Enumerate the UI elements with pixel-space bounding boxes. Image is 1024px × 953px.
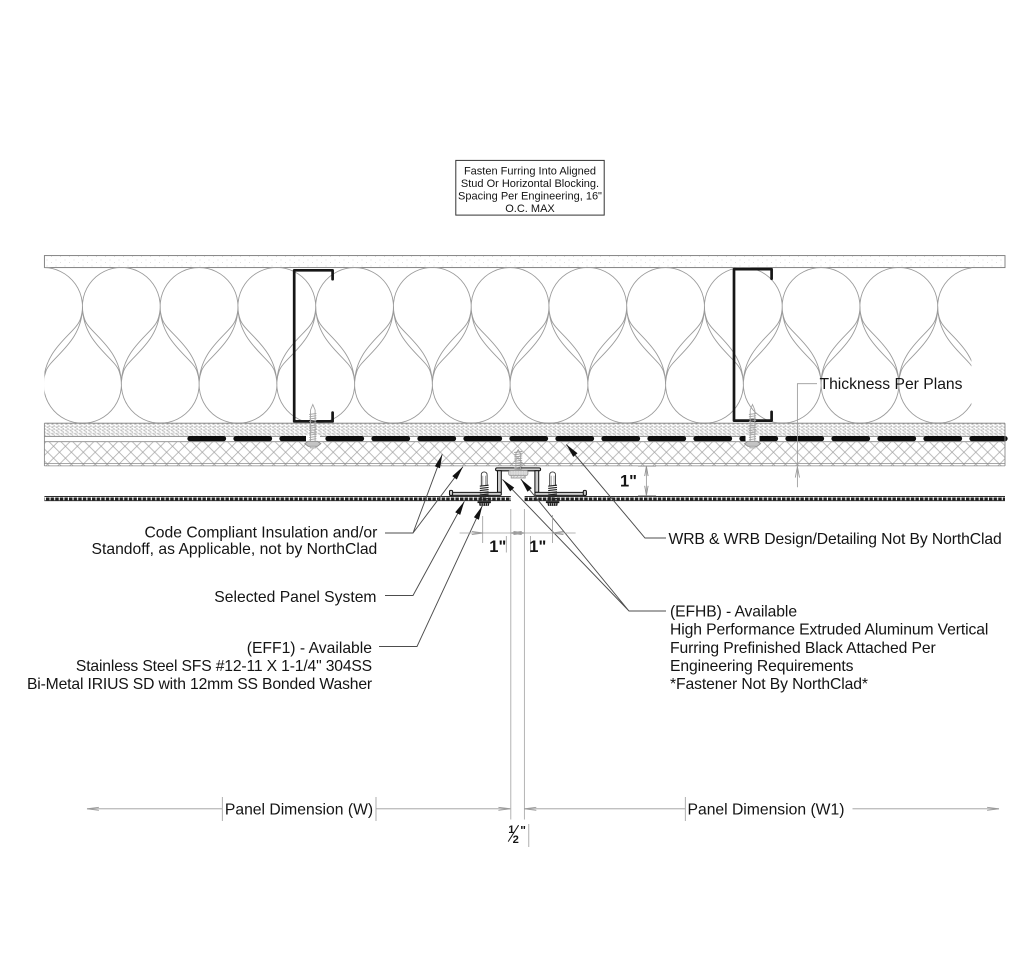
svg-text:Engineering Requirements: Engineering Requirements (670, 658, 854, 675)
svg-text:Panel Dimension (W1): Panel Dimension (W1) (688, 802, 845, 819)
svg-text:(EFF1) - Available: (EFF1) - Available (247, 640, 373, 657)
svg-text:(EFHB) - Available: (EFHB) - Available (670, 604, 797, 621)
svg-text:Furring Prefinished Black Atta: Furring Prefinished Black Attached Per (670, 640, 936, 657)
svg-text:1": 1" (489, 538, 506, 556)
svg-text:Selected Panel System: Selected Panel System (214, 589, 376, 606)
svg-text:Panel Dimension (W): Panel Dimension (W) (225, 802, 373, 819)
svg-text:2: 2 (513, 834, 519, 846)
svg-text:WRB & WRB Design/Detailing Not: WRB & WRB Design/Detailing Not By NorthC… (669, 531, 1002, 548)
svg-text:*Fastener Not By NorthClad*: *Fastener Not By NorthClad* (670, 676, 868, 693)
svg-text:O.C. MAX: O.C. MAX (505, 203, 555, 215)
svg-text:Bi-Metal IRIUS SD with 12mm SS: Bi-Metal IRIUS SD with 12mm SS Bonded Wa… (27, 676, 372, 693)
svg-text:High Performance Extruded Alum: High Performance Extruded Aluminum Verti… (670, 622, 988, 639)
svg-text:Standoff, as Applicable, not b: Standoff, as Applicable, not by NorthCla… (92, 541, 378, 558)
svg-text:Spacing Per Engineering, 16": Spacing Per Engineering, 16" (458, 191, 602, 203)
svg-text:1": 1" (529, 538, 546, 556)
svg-text:Stud Or Horizontal Blocking.: Stud Or Horizontal Blocking. (461, 178, 599, 190)
svg-text:Code Compliant Insulation and/: Code Compliant Insulation and/or (144, 524, 377, 541)
svg-text:Thickness Per Plans: Thickness Per Plans (820, 376, 963, 393)
svg-text:Stainless Steel SFS #12-11 X 1: Stainless Steel SFS #12-11 X 1-1/4" 304S… (76, 658, 372, 675)
svg-text:1": 1" (620, 472, 637, 490)
svg-text:Fasten Furring Into Aligned: Fasten Furring Into Aligned (464, 166, 596, 178)
svg-text:": " (520, 824, 526, 838)
